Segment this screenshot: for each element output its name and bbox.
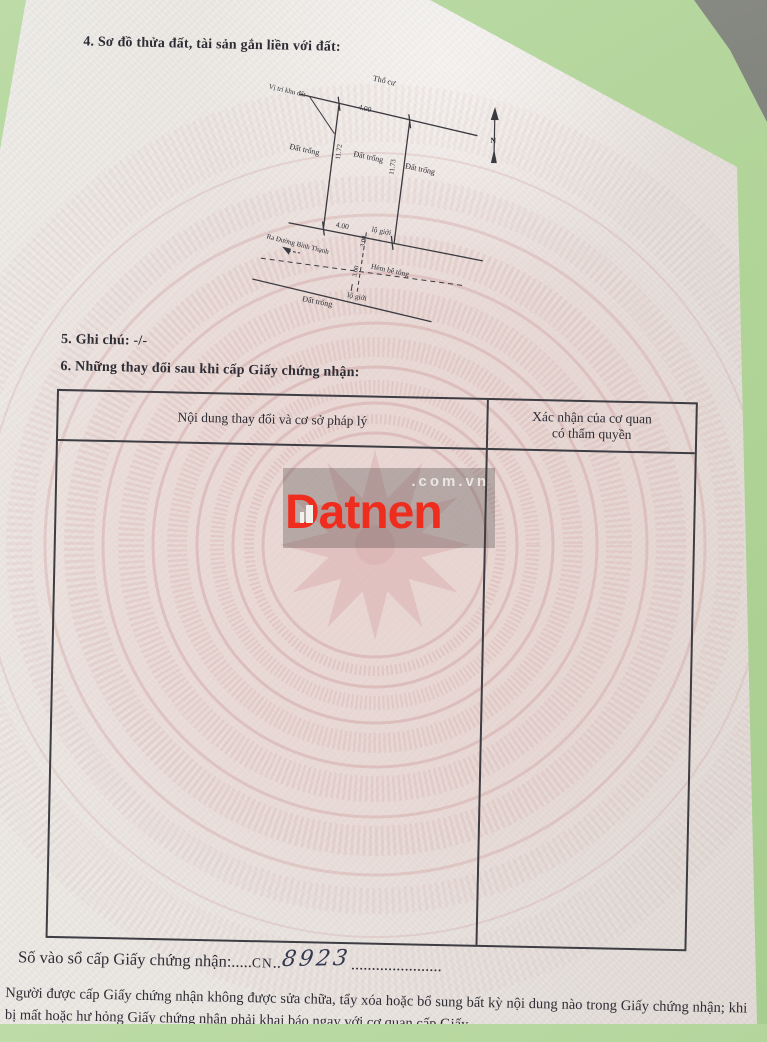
plot-left-edge <box>323 104 339 229</box>
top-boundary-line <box>298 94 478 136</box>
dots: ...................... <box>351 954 442 975</box>
location-label: Vị trí khu đất <box>268 82 306 98</box>
vacant-bottom: Đất trống <box>302 294 334 309</box>
plot-right-edge <box>394 121 410 243</box>
section6-title: 6. Những thay đổi sau khi cấp Giấy chứng… <box>60 359 359 381</box>
header-cell-content: Nội dung thay đổi và cơ sở pháp lý <box>58 391 487 448</box>
left-length: 11.72 <box>334 143 344 160</box>
register-label: Số vào sổ cấp Giấy chứng nhận: <box>18 947 232 970</box>
vacant-middle: Đất trống <box>353 149 385 164</box>
register-number-line: Số vào sổ cấp Giấy chứng nhận:.....CN..8… <box>18 943 442 977</box>
building-icon <box>306 505 313 523</box>
dots: ..... <box>231 952 252 971</box>
vacant-right: Đất trống <box>404 161 436 176</box>
street-arrowhead <box>282 247 291 255</box>
footer-note: Người được cấp Giấy chứng nhận không đượ… <box>5 983 748 1042</box>
building-icon <box>300 512 304 523</box>
handwritten-number: 8923 <box>280 946 352 972</box>
land-plot-diagram: N Thổ cư Vị trí khu đất 4.00 Đất trống 1… <box>250 62 517 325</box>
section5-note: 5. Ghi chú: -/- <box>61 332 148 350</box>
svg-text:N: N <box>490 136 496 145</box>
certificate-page: 4. Sơ đồ thửa đất, tài sản gắn liền với … <box>0 0 767 1024</box>
bottom-length: 4.00 <box>335 220 350 231</box>
vacant-left: Đất trống <box>289 142 321 157</box>
header-left-label: Nội dung thay đổi và cơ sở pháp lý <box>177 409 367 429</box>
section4-title: 4. Sơ đồ thửa đất, tài sản gắn liền với … <box>83 34 341 55</box>
header-right-line2: có thẩm quyền <box>552 425 632 443</box>
alley-width-1: 3.00 <box>359 235 368 248</box>
road-boundary-2: lộ giới <box>347 290 368 303</box>
road-boundary-1: lộ giới <box>371 225 392 238</box>
land-use-label: Thổ cư <box>372 74 397 88</box>
body-cell-confirmation <box>475 450 694 949</box>
north-arrow-icon: N <box>490 107 499 163</box>
road-boundary-line-2 <box>252 279 433 322</box>
right-length: 11.73 <box>388 158 398 175</box>
register-code: CN <box>252 955 273 970</box>
header-right-line1: Xác nhận của cơ quan <box>532 409 652 428</box>
top-length: 4.00 <box>357 102 372 114</box>
datnen-watermark: .com.vn Datnen <box>283 468 495 548</box>
header-cell-confirmation: Xác nhận của cơ quan có thẩm quyền <box>486 400 696 452</box>
